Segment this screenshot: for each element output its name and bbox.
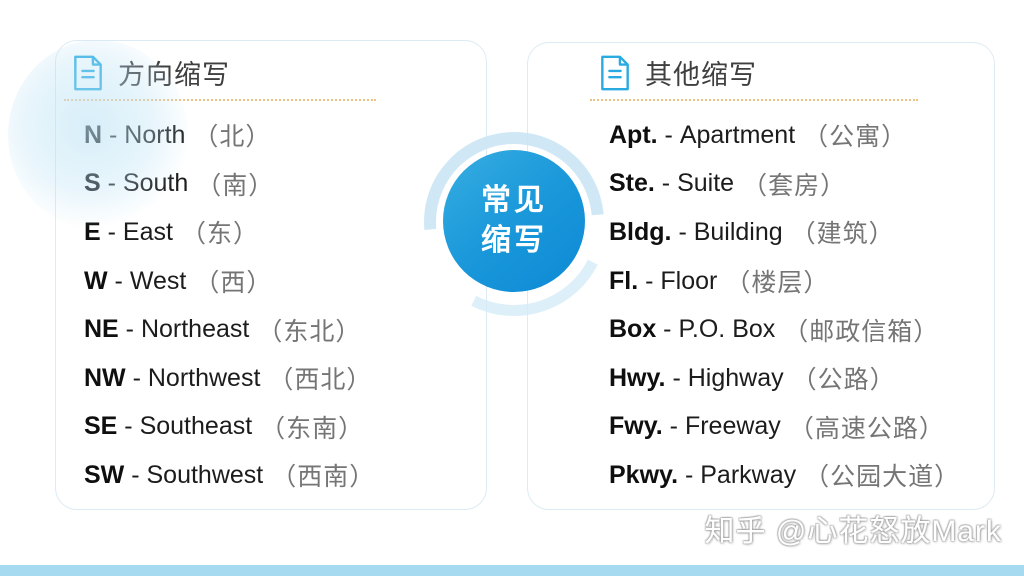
chinese-translation: （套房） (742, 166, 846, 202)
chinese-translation: （东） (181, 214, 259, 250)
full-term: Southeast (140, 412, 253, 441)
abbreviation: Fwy. (609, 412, 663, 441)
full-term: Floor (660, 267, 717, 296)
chinese-translation: （邮政信箱） (783, 312, 939, 348)
chinese-translation: （西） (194, 263, 272, 299)
other-panel-title: 其他缩写 (645, 53, 757, 92)
abbreviation-row: Hwy. - Highway（公路） (609, 354, 994, 403)
abbreviation-row: Bldg. - Building（建筑） (609, 208, 994, 257)
abbreviation: Bldg. (609, 218, 672, 247)
chinese-translation: （楼层） (725, 263, 829, 299)
full-term: Suite (677, 169, 734, 198)
direction-panel-title: 方向缩写 (118, 53, 230, 92)
chinese-translation: （北） (193, 117, 271, 153)
abbreviation: NE (84, 315, 119, 344)
abbreviation-row: Fl. - Floor（楼层） (609, 257, 994, 306)
other-list: Apt. - Apartment（公寓）Ste. - Suite（套房）Bldg… (528, 101, 994, 500)
separator: - (655, 169, 677, 198)
chinese-translation: （公路） (792, 360, 896, 396)
abbreviation: NW (84, 364, 126, 393)
full-term: East (123, 218, 173, 247)
separator: - (656, 315, 678, 344)
other-panel-header: 其他缩写 (528, 43, 994, 92)
chinese-translation: （东南） (260, 409, 364, 445)
abbreviation-row: E - East（东） (84, 208, 486, 257)
center-badge-line2: 缩写 (481, 221, 547, 261)
separator: - (126, 364, 148, 393)
full-term: Parkway (700, 461, 796, 490)
abbreviation: Hwy. (609, 364, 666, 393)
separator: - (101, 169, 123, 198)
chinese-translation: （西南） (271, 457, 375, 493)
full-term: Building (694, 218, 783, 247)
separator: - (666, 364, 688, 393)
direction-panel-header: 方向缩写 (56, 41, 486, 92)
abbreviation-row: SW - Southwest（西南） (84, 451, 486, 500)
separator: - (672, 218, 694, 247)
watermark: 知乎 @心花怒放Mark (705, 506, 1002, 550)
abbreviation: Apt. (609, 121, 658, 150)
separator: - (678, 461, 700, 490)
full-term: West (130, 267, 187, 296)
abbreviation-row: Box - P.O. Box（邮政信箱） (609, 305, 994, 354)
full-term: South (123, 169, 188, 198)
document-icon (598, 54, 632, 92)
abbreviation-row: Ste. - Suite（套房） (609, 160, 994, 209)
abbreviation-row: S - South（南） (84, 160, 486, 209)
abbreviation-row: NW - Northwest（西北） (84, 354, 486, 403)
full-term: Northeast (141, 315, 249, 344)
abbreviation-row: Apt. - Apartment（公寓） (609, 111, 994, 160)
abbreviation-row: Fwy. - Freeway（高速公路） (609, 403, 994, 452)
chinese-translation: （西北） (268, 360, 372, 396)
separator: - (102, 121, 124, 150)
abbreviation-row: SE - Southeast（东南） (84, 403, 486, 452)
separator: - (663, 412, 685, 441)
chinese-translation: （高速公路） (789, 409, 945, 445)
full-term: Freeway (685, 412, 781, 441)
center-badge-line1: 常见 (481, 181, 547, 221)
direction-list: N - North（北）S - South（南）E - East（东）W - W… (56, 101, 486, 500)
abbreviation-row: N - North（北） (84, 111, 486, 160)
full-term: P.O. Box (678, 315, 775, 344)
chinese-translation: （南） (196, 166, 274, 202)
full-term: Highway (688, 364, 784, 393)
abbreviation: Pkwy. (609, 461, 678, 490)
chinese-translation: （东北） (257, 312, 361, 348)
abbreviation-row: NE - Northeast（东北） (84, 305, 486, 354)
separator: - (117, 412, 139, 441)
center-badge: 常见 缩写 (443, 150, 585, 292)
abbreviation: N (84, 121, 102, 150)
abbreviation: S (84, 169, 101, 198)
separator: - (108, 267, 130, 296)
abbreviation: Ste. (609, 169, 655, 198)
separator: - (101, 218, 123, 247)
separator: - (119, 315, 141, 344)
other-panel: 其他缩写 Apt. - Apartment（公寓）Ste. - Suite（套房… (527, 42, 995, 510)
abbreviation: Box (609, 315, 656, 344)
abbreviation: SW (84, 461, 124, 490)
document-icon (71, 54, 105, 92)
chinese-translation: （建筑） (791, 214, 895, 250)
separator: - (124, 461, 146, 490)
abbreviation: E (84, 218, 101, 247)
separator: - (638, 267, 660, 296)
full-term: Southwest (147, 461, 264, 490)
full-term: Apartment (680, 121, 795, 150)
abbreviation: SE (84, 412, 117, 441)
abbreviation: Fl. (609, 267, 638, 296)
bottom-strip (0, 565, 1024, 576)
full-term: North (124, 121, 185, 150)
full-term: Northwest (148, 364, 261, 393)
chinese-translation: （公寓） (803, 117, 907, 153)
abbreviation-row: W - West（西） (84, 257, 486, 306)
separator: - (658, 121, 680, 150)
abbreviation: W (84, 267, 108, 296)
chinese-translation: （公园大道） (804, 457, 960, 493)
direction-panel: 方向缩写 N - North（北）S - South（南）E - East（东）… (55, 40, 487, 510)
abbreviation-row: Pkwy. - Parkway（公园大道） (609, 451, 994, 500)
